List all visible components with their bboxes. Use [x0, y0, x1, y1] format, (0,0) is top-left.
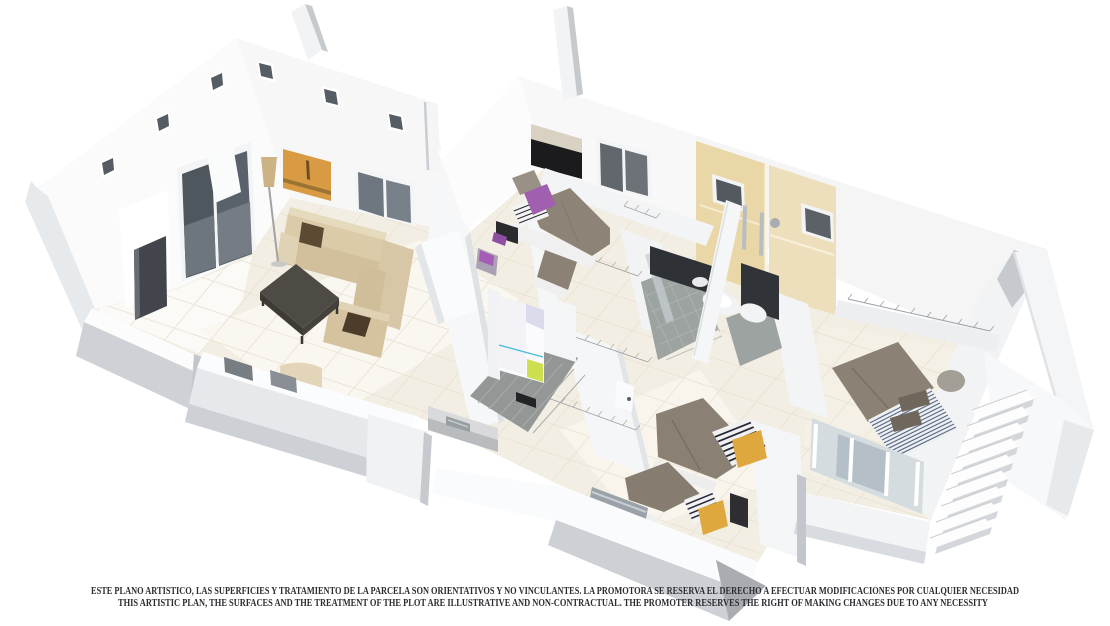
svg-text:ESTE PLANO ARTISTICO, LAS SUPE: ESTE PLANO ARTISTICO, LAS SUPERFICIES Y …: [91, 586, 1019, 597]
svg-text:THIS ARTISTIC PLAN, THE SURFAC: THIS ARTISTIC PLAN, THE SURFACES AND THE…: [118, 598, 989, 609]
